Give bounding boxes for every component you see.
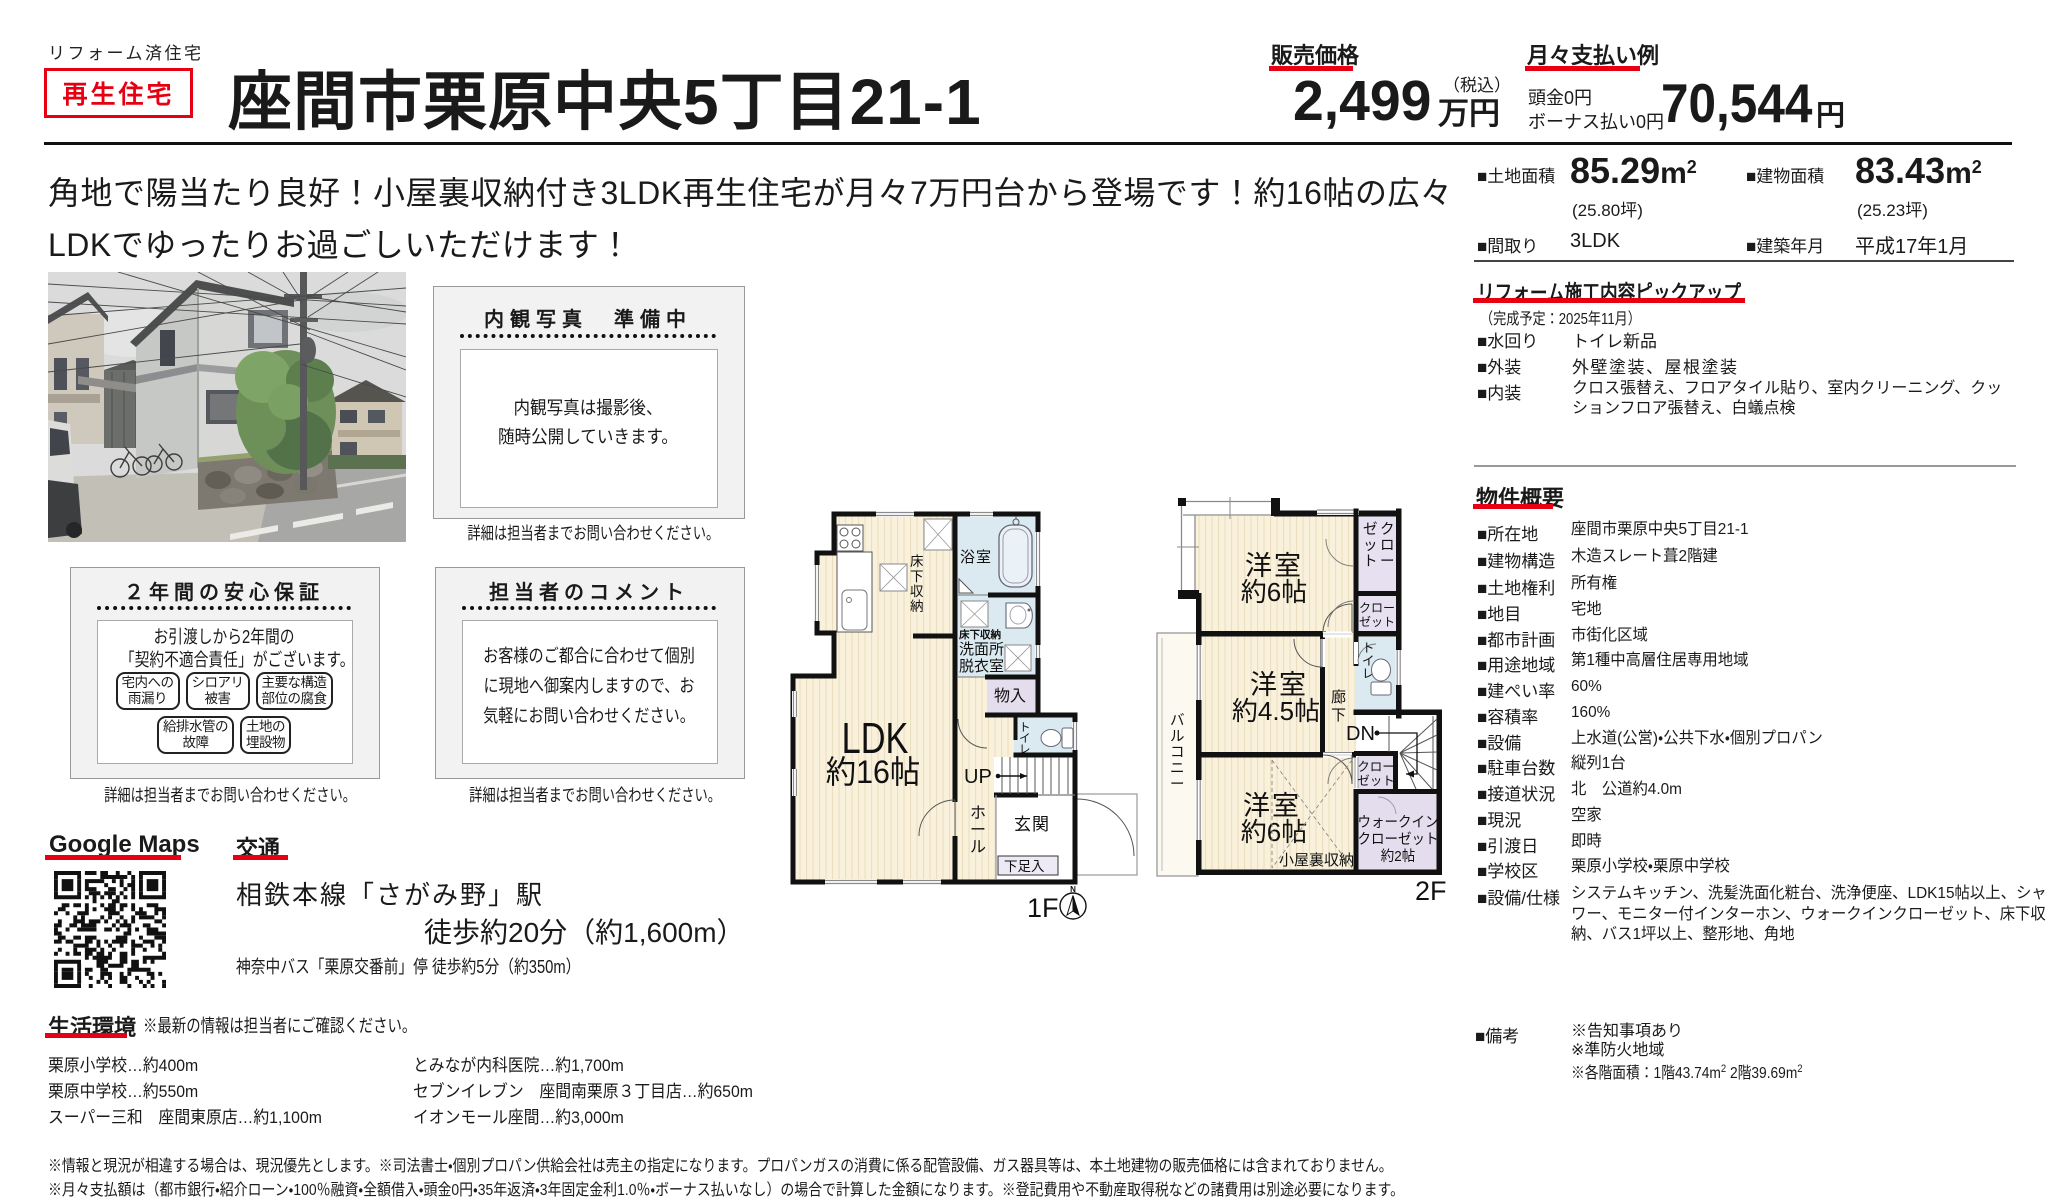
svg-text:2F: 2F: [1415, 876, 1447, 906]
svg-text:約4.5帖: 約4.5帖: [1232, 696, 1320, 726]
svg-text:クローゼット: クローゼット: [1358, 831, 1439, 848]
svg-text:トイレ: トイレ: [1019, 722, 1031, 756]
svg-text:約16帖: 約16帖: [826, 754, 921, 790]
svg-text:N: N: [1070, 885, 1076, 894]
svg-text:1F: 1F: [1027, 893, 1059, 923]
svg-text:クロー: クロー: [1380, 521, 1395, 570]
svg-text:クロー: クロー: [1359, 601, 1395, 615]
svg-text:下足入: 下足入: [1004, 859, 1045, 874]
svg-text:床下収納: 床下収納: [959, 628, 1001, 641]
svg-text:玄関: 玄関: [1014, 815, 1050, 834]
svg-text:ゼット: ゼット: [1359, 615, 1395, 629]
svg-text:洗面所: 洗面所: [959, 641, 1004, 658]
svg-text:バルコニー: バルコニー: [1170, 713, 1185, 793]
svg-text:廊下: 廊下: [1331, 689, 1346, 724]
svg-text:床下収納: 床下収納: [910, 554, 924, 614]
svg-text:浴室: 浴室: [960, 549, 992, 566]
svg-text:小屋裏収納: 小屋裏収納: [1279, 852, 1354, 869]
svg-text:ホール: ホール: [970, 805, 986, 856]
svg-text:DN: DN: [1346, 723, 1375, 745]
svg-text:脱衣室: 脱衣室: [959, 658, 1004, 675]
svg-text:ゼット: ゼット: [1363, 521, 1378, 570]
svg-text:クロー: クロー: [1357, 760, 1395, 774]
svg-text:約6帖: 約6帖: [1241, 817, 1307, 847]
svg-text:ウォークイン: ウォークイン: [1358, 814, 1439, 831]
svg-text:約6帖: 約6帖: [1241, 577, 1307, 607]
svg-text:約2帖: 約2帖: [1381, 848, 1415, 865]
svg-text:UP: UP: [964, 766, 992, 788]
svg-text:ゼット: ゼット: [1357, 774, 1395, 788]
svg-text:物入: 物入: [994, 687, 1026, 705]
